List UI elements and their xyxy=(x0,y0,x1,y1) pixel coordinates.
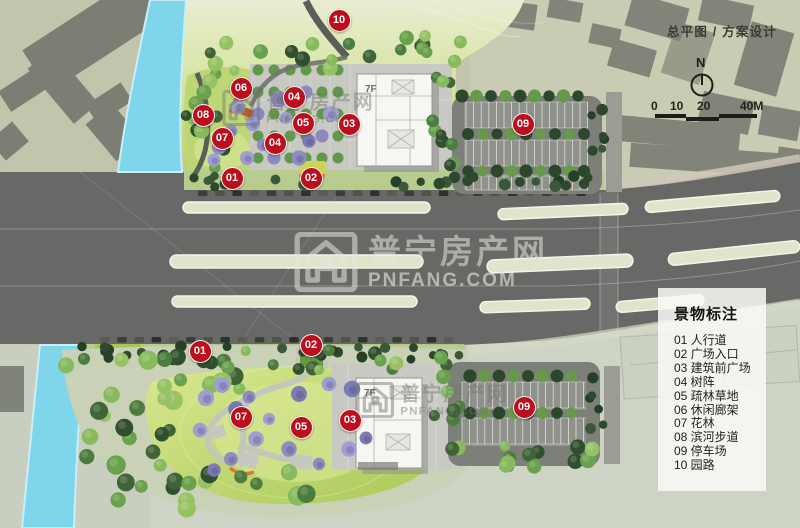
legend-item-03: 03 建筑前广场 xyxy=(658,362,766,376)
legend-item-02: 02 广场入口 xyxy=(658,348,766,362)
scale-label-10: 10 xyxy=(670,99,683,113)
legend-item-05: 05 疏林草地 xyxy=(658,390,766,404)
legend-item-01: 01 人行道 xyxy=(658,334,766,348)
floor-label-lower: 7F xyxy=(364,388,376,399)
scale-label-40m: 40M xyxy=(740,99,763,113)
legend-panel: 景物标注 01 人行道02 广场入口03 建筑前广场04 树阵05 疏林草地06… xyxy=(658,288,766,491)
plan-title: 总平图 / 方案设计 xyxy=(667,21,777,40)
site-plan: 普宁房产网 PNFANG.COM 普宁房产网 PNFANG.COM 普宁房产网 … xyxy=(0,0,800,528)
scale-bar-segment xyxy=(655,114,686,118)
scale-label-20: 20 xyxy=(697,99,710,113)
legend-item-10: 10 园路 xyxy=(658,459,766,473)
scale-bar-segment xyxy=(686,117,719,121)
scale-label-0: 0 xyxy=(651,99,658,113)
legend-title: 景物标注 xyxy=(674,303,766,324)
legend-item-04: 04 树阵 xyxy=(658,376,766,390)
scale-bar-segment xyxy=(719,114,757,118)
north-label: N xyxy=(696,55,705,70)
legend-items: 01 人行道02 广场入口03 建筑前广场04 树阵05 疏林草地06 休闲廊架… xyxy=(658,334,766,473)
north-arrow-icon xyxy=(689,72,715,98)
floor-label-upper: 7F xyxy=(365,84,377,95)
